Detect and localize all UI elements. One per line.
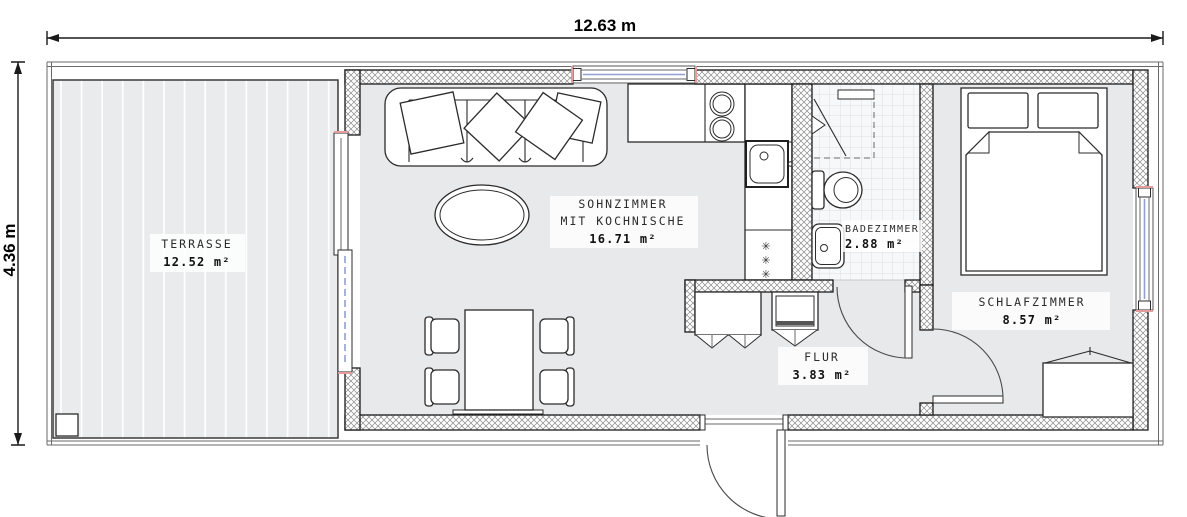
- dimension-height-label: 4.36 m: [0, 224, 19, 277]
- kitchen-symbols: ✳ ✳ ✳: [761, 240, 770, 281]
- flur-area: 3.83 m²: [793, 368, 852, 382]
- washbasin-icon: [812, 224, 844, 268]
- badezimmer-name: BADEZIMMER: [845, 224, 919, 235]
- sofa-icon: [385, 88, 607, 166]
- wohnzimmer-name-line1: SOHNZIMMER: [578, 197, 667, 211]
- room-label-wohnzimmer: SOHNZIMMER MIT KOCHNISCHE 16.71 m²: [550, 196, 698, 248]
- terrace-post: [56, 414, 78, 436]
- bedroom-window-icon: [1136, 186, 1153, 312]
- room-label-terrasse: TERRASSE 12.52 m²: [150, 234, 245, 272]
- terrasse-area: 12.52 m²: [163, 255, 230, 269]
- kitchen-symbol-1: ✳: [761, 240, 770, 253]
- terrasse-name: TERRASSE: [161, 237, 232, 251]
- room-label-flur: FLUR 3.83 m²: [778, 347, 868, 385]
- dining-chair-icon: [425, 368, 459, 406]
- room-label-schlafzimmer: SCHLAFZIMMER 8.57 m²: [952, 292, 1110, 330]
- kitchen-symbol-2: ✳: [761, 254, 770, 267]
- kitchen-symbol-3: ✳: [761, 268, 770, 281]
- floor-plan-canvas: ✳ ✳ ✳: [0, 0, 1187, 517]
- dining-table-icon: [453, 310, 543, 414]
- toilet-icon: [812, 171, 862, 209]
- dining-chair-icon: [425, 317, 459, 355]
- dimension-height: 4.36 m: [0, 62, 25, 445]
- flur-name: FLUR: [804, 350, 840, 364]
- schlafzimmer-area: 8.57 m²: [1003, 313, 1062, 327]
- schlafzimmer-name: SCHLAFZIMMER: [978, 295, 1085, 309]
- kitchen-window-icon: [571, 66, 697, 83]
- wohnzimmer-name-line2: MIT KOCHNISCHE: [561, 214, 686, 228]
- dining-chair-icon: [540, 317, 574, 355]
- floor-plan-page: ✳ ✳ ✳: [0, 0, 1187, 517]
- dimension-width: 12.63 m: [47, 16, 1163, 45]
- badezimmer-area: 2.88 m²: [845, 237, 904, 251]
- dimension-width-label: 12.63 m: [574, 16, 636, 35]
- room-label-badezimmer: BADEZIMMER 2.88 m²: [842, 220, 922, 252]
- dining-chair-icon: [540, 368, 574, 406]
- bed-icon: [961, 88, 1107, 275]
- coffee-table-icon: [435, 185, 529, 245]
- kitchen-sink-icon: [746, 141, 793, 187]
- entrance-door-icon: [700, 415, 788, 517]
- wohnzimmer-area: 16.71 m²: [589, 232, 656, 246]
